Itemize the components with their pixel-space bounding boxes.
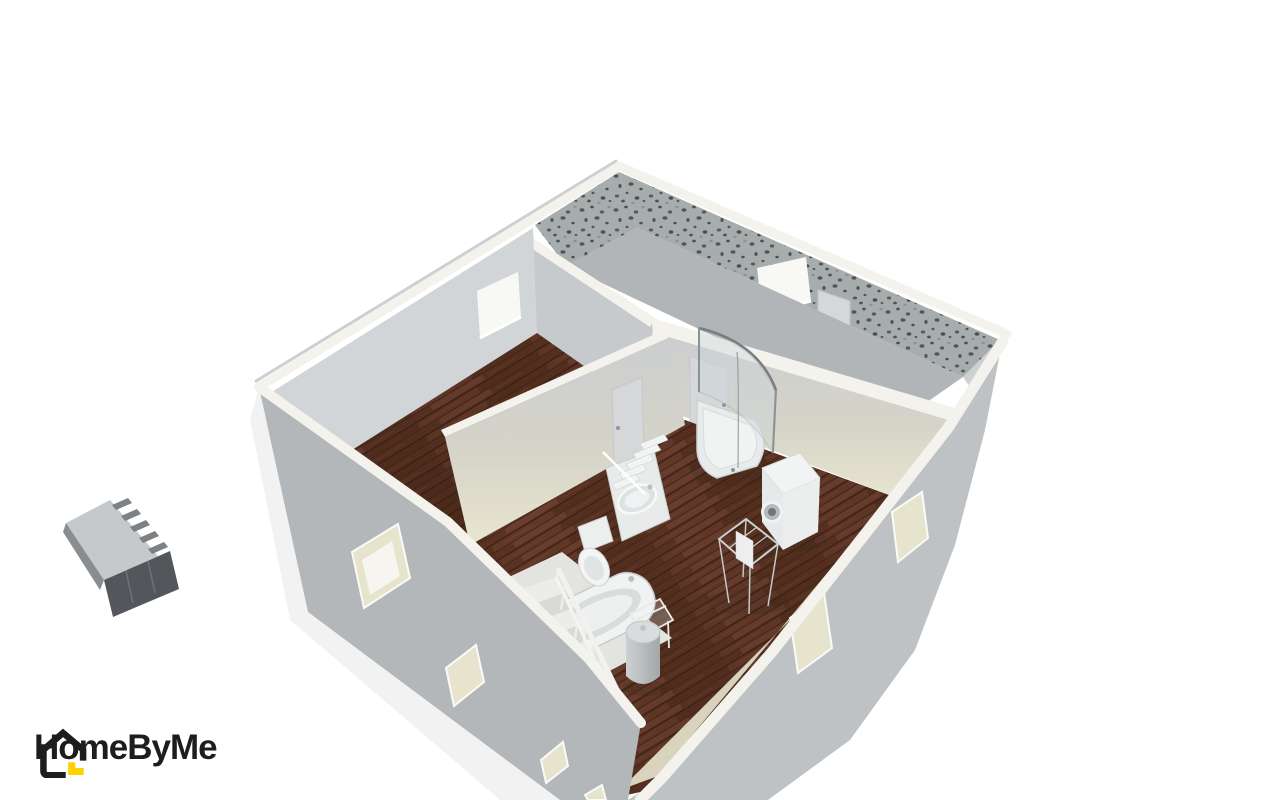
- laundry-bin[interactable]: [626, 621, 660, 684]
- wall-desk[interactable]: [63, 498, 179, 617]
- homebyme-logo: HomeByMe: [34, 728, 217, 768]
- floorplan-3d-render: [0, 0, 1280, 800]
- house-logo-icon: [34, 728, 92, 778]
- render-canvas: HomeByMe: [0, 0, 1280, 800]
- logo-yellow-corner: [72, 762, 84, 771]
